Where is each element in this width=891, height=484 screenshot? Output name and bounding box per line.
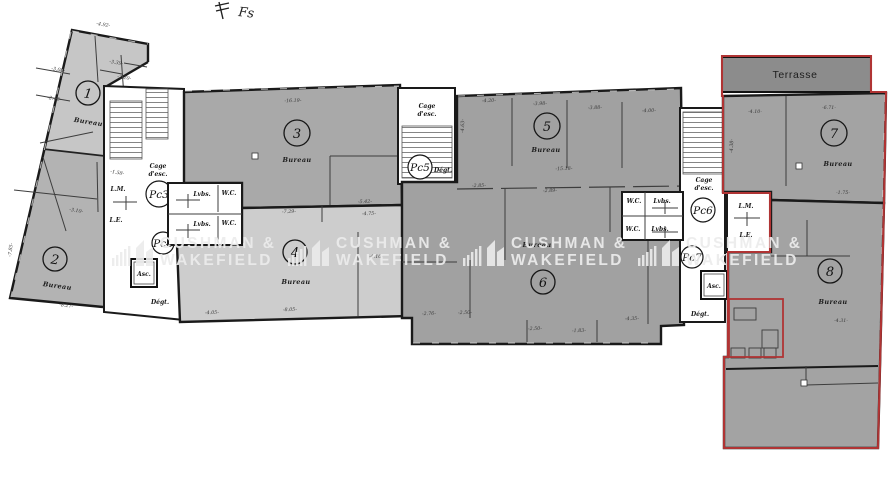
lvbs-label: Lvbs. [650, 226, 668, 233]
dimension-label: -5.42- [358, 199, 373, 205]
watermark-line2: WAKEFIELD [160, 252, 273, 269]
stair-label: Cage [419, 103, 436, 110]
dimension-label: -4.63- [460, 119, 466, 134]
dimension-label: -2.76- [422, 311, 437, 317]
pc3-label: Pc3 [148, 189, 169, 201]
asc-label: Asc. [706, 283, 721, 290]
handwritten-mark: Fs [215, 2, 255, 22]
floor-plan: 1 Bureau 2 Bureau Cage d'esc. Pc3 L.M. L… [0, 0, 891, 484]
stair-label: Cage [150, 163, 167, 170]
room-4-label: Bureau [280, 278, 310, 286]
dimension-label: -2.50- [458, 310, 473, 316]
lvbs-label: Lvbs. [192, 191, 210, 198]
lvbs-label: Lvbs. [652, 198, 670, 205]
dimension-label: -4.20- [482, 98, 497, 104]
wc-label: W.C. [626, 226, 641, 233]
dimension-label: -2.20- [117, 74, 132, 82]
lm-label: L.M. [109, 186, 125, 193]
handwritten-strokes [215, 2, 229, 19]
sanitary-block-right: W.C. Lvbs. W.C. Lvbs. [622, 192, 683, 240]
room-3-label: Bureau [281, 156, 311, 164]
dimension-label: -16.19- [284, 98, 302, 105]
room-6-number: 6 [539, 276, 547, 291]
dimension-label: -1.75- [836, 190, 850, 196]
wc-label: W.C. [222, 220, 237, 227]
stair-label: d'esc. [695, 185, 714, 192]
stairwell-right: Cage d'esc. Pc6 Pc7 Asc. Dégt. [680, 108, 727, 322]
dimension-label: -4.10- [748, 109, 762, 115]
stairwell-middle: Cage d'esc. Pc5 Dégt. [398, 88, 455, 184]
dimension-label: -2.85- [472, 183, 487, 189]
wc-label: W.C. [627, 198, 642, 205]
watermark-line1: CUSHMAN & [336, 235, 452, 252]
asc-label: Asc. [136, 271, 151, 278]
dimension-label: -15.18- [555, 166, 573, 173]
stair-label: d'esc. [149, 171, 168, 178]
terrasse-label: Terrasse [772, 69, 817, 81]
dimension-label: -3.98- [533, 101, 548, 107]
le-label: L.E. [109, 217, 123, 224]
room-7-number: 7 [830, 127, 839, 142]
room-8-label: Bureau [817, 298, 847, 306]
stair-label: d'esc. [418, 111, 437, 118]
dimension-label: -8.05- [283, 307, 298, 313]
degt-label: Dégt. [433, 167, 452, 174]
degt-label: Dégt. [150, 299, 169, 306]
stairs [110, 101, 142, 159]
pc6-label: Pc6 [692, 205, 713, 217]
room-5-label: Bureau [530, 146, 560, 154]
wc-label: W.C. [222, 190, 237, 197]
dimension-label: -4.75- [362, 211, 377, 217]
dimension-label: -4.35- [625, 316, 640, 322]
pc5-label: Pc5 [409, 162, 430, 174]
room-5-number: 5 [543, 120, 551, 135]
dimension-label: -4.38- [729, 139, 735, 154]
dimension-label: -1.83- [572, 328, 587, 334]
dimension-label: -4.92- [96, 21, 111, 29]
lvbs-label: Lvbs. [192, 221, 210, 228]
watermark-line1: CUSHMAN & [686, 235, 802, 252]
lm-label: L.M. [737, 203, 753, 210]
watermark-line1: CUSHMAN & [160, 235, 276, 252]
dimension-label: -4.31- [834, 318, 848, 324]
dimension-label: -4.05- [205, 310, 220, 316]
room-7-label: Bureau [822, 160, 852, 168]
room-8-number: 8 [826, 265, 834, 280]
handwritten-text: Fs [237, 5, 255, 22]
dimension-label: -4.00- [642, 108, 657, 114]
dimension-label: -2.89- [543, 188, 558, 194]
room-3-number: 3 [293, 127, 301, 142]
stair-label: Cage [696, 177, 713, 184]
dimension-label: -7.29- [282, 209, 297, 215]
dimension-label: -7.85- [7, 242, 15, 257]
dimension-label: -2.50- [528, 326, 543, 332]
watermark-line2: WAKEFIELD [686, 252, 799, 269]
degt-label: Dégt. [690, 311, 709, 318]
watermark-line1: CUSHMAN & [511, 235, 627, 252]
floor-plan-page: 1 Bureau 2 Bureau Cage d'esc. Pc3 L.M. L… [0, 0, 891, 484]
stairs [146, 89, 168, 139]
watermark-line2: WAKEFIELD [511, 252, 624, 269]
dimension-label: -3.88- [588, 105, 603, 111]
stairs [683, 112, 723, 174]
watermark-line2: WAKEFIELD [336, 252, 449, 269]
dimension-label: -6.71- [822, 105, 836, 111]
